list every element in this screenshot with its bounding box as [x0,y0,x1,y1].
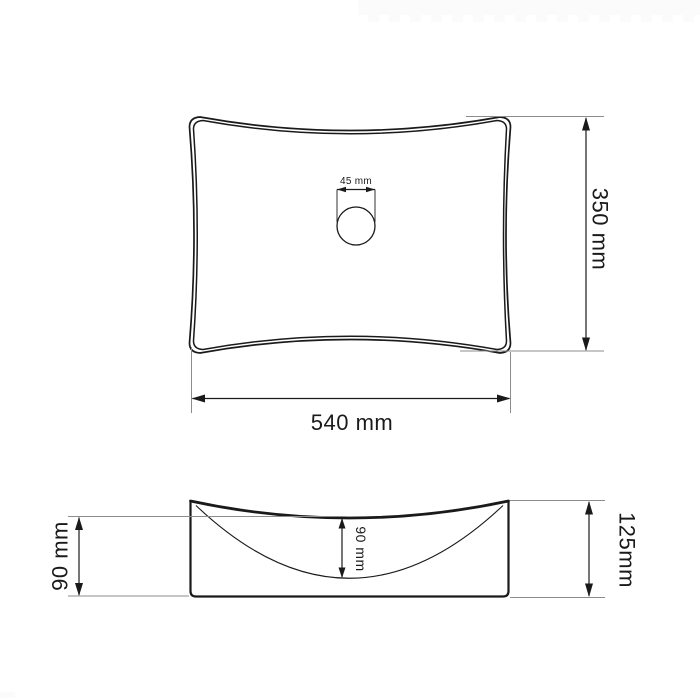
dim-90-inner-arrow-top [339,518,346,529]
dim-350-arrow-bottom [582,338,590,352]
width-dimension-540: 540 mm [192,347,511,435]
drain-dim-arrow-right [366,187,375,193]
outer-depth-dimension-90: 90 mm [48,517,342,597]
outer-depth-dimension-label: 90 mm [48,521,73,591]
height-dimension-label: 350 mm [588,188,613,270]
width-dimension-label: 540 mm [311,410,393,435]
height-dimension-350: 350 mm [460,117,613,352]
dim-350-arrow-top [582,117,590,131]
dim-90-arrow-bottom [75,583,83,596]
inner-depth-dimension-90: 90 mm [339,518,370,578]
dim-540-arrow-right [497,395,511,403]
total-height-dimension-125: 125mm [510,501,640,598]
dim-90-inner-arrow-bottom [339,568,346,579]
dim-90-arrow-top [75,517,83,530]
total-height-dimension-label: 125mm [615,512,640,588]
drain-dimension-label: 45 mm [340,176,372,187]
dim-125-arrow-bottom [585,584,593,598]
dim-540-arrow-left [192,395,206,403]
top-view: 45 mm 350 mm 540 mm [190,117,613,436]
inner-depth-dimension-label: 90 mm [353,526,369,571]
dim-125-arrow-top [585,501,593,515]
sink-dimension-drawing: 45 mm 350 mm 540 mm [0,0,700,700]
drain-dim-arrow-left [337,187,346,193]
side-view: 90 mm 90 mm 125mm [48,501,640,598]
drain-hole [337,207,375,245]
technical-drawing-canvas: 45 mm 350 mm 540 mm [0,0,700,700]
side-view-body-outline [191,501,509,597]
side-view-top-rim [191,501,509,518]
